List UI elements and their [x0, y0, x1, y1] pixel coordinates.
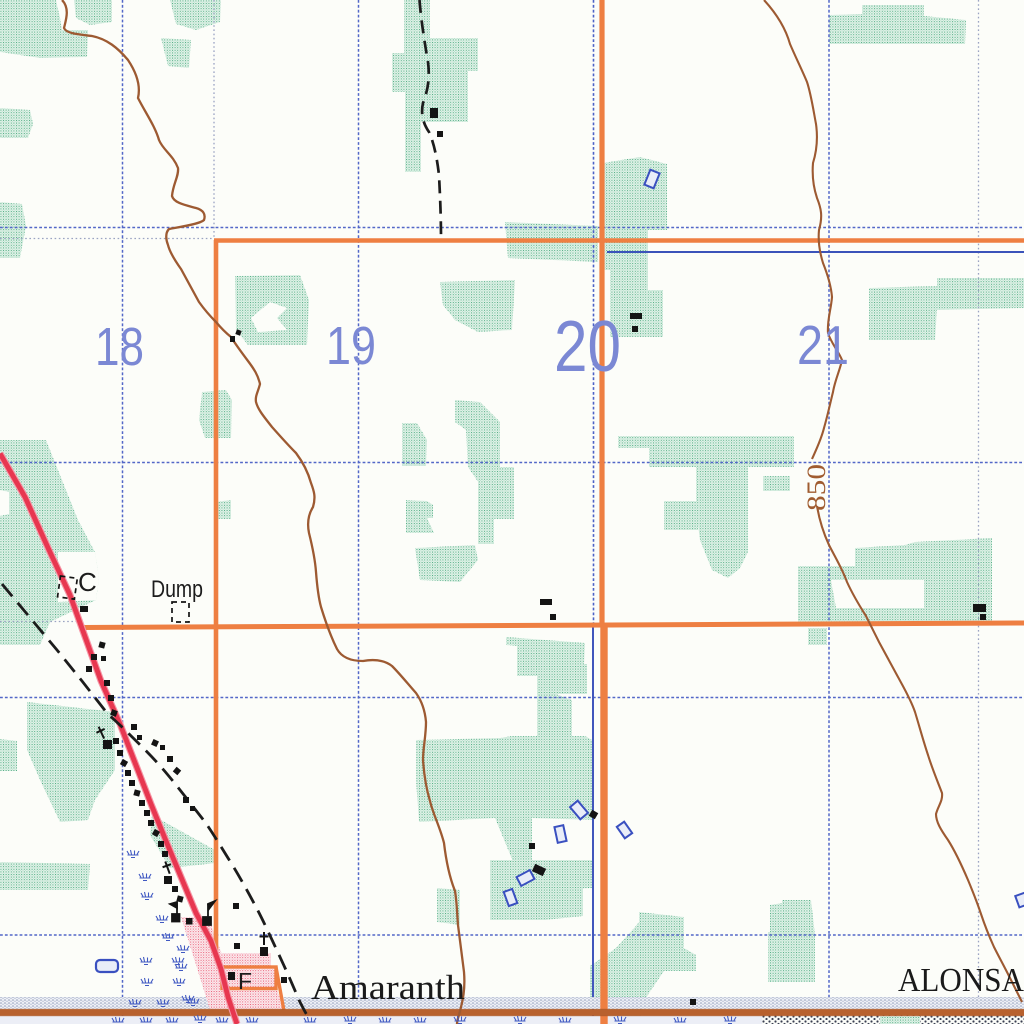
svg-text:21: 21	[797, 314, 849, 376]
svg-text:18: 18	[95, 317, 144, 377]
svg-text:19: 19	[326, 316, 376, 376]
svg-text:F: F	[238, 968, 252, 994]
svg-text:20: 20	[554, 307, 621, 387]
svg-text:Dump: Dump	[151, 576, 203, 603]
svg-text:850: 850	[802, 464, 831, 511]
svg-text:C: C	[78, 567, 97, 597]
svg-text:Amaranth: Amaranth	[311, 968, 466, 1007]
svg-text:ALONSA: ALONSA	[898, 962, 1024, 999]
